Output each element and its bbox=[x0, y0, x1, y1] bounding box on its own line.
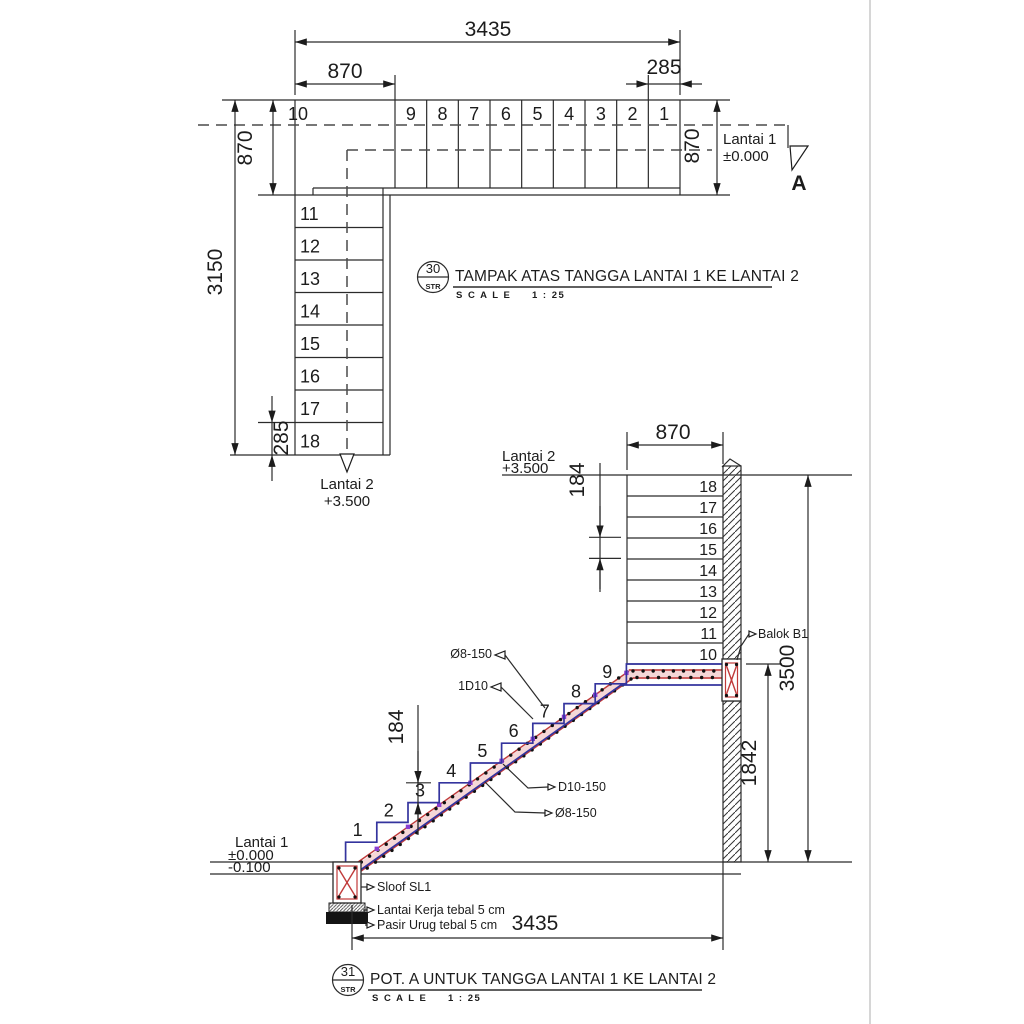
rebar-dot bbox=[668, 676, 671, 679]
step-number: 1 bbox=[353, 820, 363, 840]
plan-level-end-name: Lantai 2 bbox=[320, 476, 373, 493]
step-number: 8 bbox=[571, 682, 581, 702]
step-number: 11 bbox=[700, 626, 717, 643]
rebar-dot bbox=[551, 724, 554, 727]
dim-total-top: 3435 bbox=[465, 18, 512, 41]
rebar-dot bbox=[368, 854, 371, 857]
sand-fill-strip bbox=[326, 912, 368, 924]
rebar-dot bbox=[393, 837, 396, 840]
ann-sloof: Sloof SL1 bbox=[377, 880, 431, 894]
rebar-dot bbox=[385, 843, 388, 846]
rebar-dot bbox=[443, 801, 446, 804]
rebar-dot bbox=[700, 676, 703, 679]
rebar-dot bbox=[692, 669, 695, 672]
tread-number: 11 bbox=[300, 204, 319, 224]
technical-drawing: 109876543211112131415161718 A 3435 870 2… bbox=[0, 0, 1024, 1024]
step-number: 14 bbox=[699, 563, 717, 580]
tread-number: 6 bbox=[501, 104, 511, 124]
step-number: 2 bbox=[384, 800, 394, 820]
section-title: POT. A UNTUK TANGGA LANTAI 1 KE LANTAI 2 bbox=[370, 971, 716, 988]
section-scale-value: 1 : 25 bbox=[448, 993, 481, 1004]
plan-title-block: 30 STR TAMPAK ATAS TANGGA LANTAI 1 KE LA… bbox=[418, 261, 800, 301]
tread-number: 12 bbox=[300, 237, 320, 257]
stirrup-mark bbox=[406, 825, 410, 829]
step-number: 5 bbox=[477, 741, 487, 761]
rebar-dot bbox=[426, 813, 429, 816]
step-number: 12 bbox=[699, 605, 717, 622]
dim-landing: 870 bbox=[655, 421, 690, 444]
section-level-bottom-elev2: -0.100 bbox=[228, 859, 271, 876]
ann-main-bar: D10-150 bbox=[558, 780, 606, 794]
plan-level-start-name: Lantai 1 bbox=[723, 131, 776, 148]
tread-number: 17 bbox=[300, 399, 320, 419]
tread-number: 5 bbox=[532, 104, 542, 124]
rebar-dot bbox=[492, 765, 495, 768]
plan-title: TAMPAK ATAS TANGGA LANTAI 1 KE LANTAI 2 bbox=[455, 268, 799, 285]
rebar-dot bbox=[652, 669, 655, 672]
rebar-dot bbox=[641, 669, 644, 672]
rebar-dot bbox=[476, 777, 479, 780]
rebar-dot bbox=[672, 669, 675, 672]
tread-number: 1 bbox=[659, 104, 669, 124]
rebar-dot bbox=[689, 676, 692, 679]
tread-number: 18 bbox=[300, 432, 320, 452]
walk-arrow-icon bbox=[340, 454, 354, 472]
plan-level-end-elev: +3.500 bbox=[324, 493, 370, 510]
plan-scale-value: 1 : 25 bbox=[532, 290, 565, 301]
step-number: 9 bbox=[602, 662, 612, 682]
drawing-sheet: 109876543211112131415161718 A 3435 870 2… bbox=[0, 0, 1024, 1024]
lean-concrete-strip bbox=[329, 903, 365, 912]
dim-riser-upper: 184 bbox=[566, 462, 589, 497]
rebar-dot bbox=[631, 669, 634, 672]
rebar-dot bbox=[629, 677, 632, 680]
dim-tread-top: 285 bbox=[646, 56, 681, 79]
step-number: 10 bbox=[699, 647, 717, 664]
dim-height-total: 3500 bbox=[776, 645, 799, 692]
section-view: Lantai 2 +3.500 181716151413121110 870 1… bbox=[210, 421, 852, 950]
slab-concrete-fill bbox=[352, 672, 632, 875]
tread-number: 2 bbox=[627, 104, 637, 124]
rebar-dots bbox=[351, 669, 735, 875]
dim-height-landing: 1842 bbox=[738, 740, 761, 787]
plan-level-start-elev: ±0.000 bbox=[723, 148, 769, 165]
section-upper-steps: 181716151413121110 bbox=[627, 479, 723, 664]
section-level-top-elev: +3.500 bbox=[502, 460, 548, 477]
dim-width-right: 870 bbox=[681, 128, 704, 163]
rebar-dot bbox=[646, 676, 649, 679]
dim-run-total: 3435 bbox=[512, 912, 559, 935]
rebar-dot bbox=[451, 795, 454, 798]
ann-extra-bar: 1D10 bbox=[458, 679, 488, 693]
step-number: 16 bbox=[699, 521, 717, 538]
rebar-dot bbox=[517, 748, 520, 751]
tread-number: 8 bbox=[437, 104, 447, 124]
tread-number: 15 bbox=[300, 334, 320, 354]
rebar-dot bbox=[434, 807, 437, 810]
dim-tread-left: 285 bbox=[270, 420, 293, 455]
rebar-dot bbox=[617, 676, 620, 679]
step-number: 17 bbox=[699, 500, 717, 517]
rebar-dot bbox=[712, 669, 715, 672]
dim-width-left: 870 bbox=[234, 130, 257, 165]
plan-callout-number: 30 bbox=[426, 261, 440, 276]
rebar-dot bbox=[711, 676, 714, 679]
section-letter: A bbox=[791, 172, 806, 195]
rebar-dot bbox=[559, 718, 562, 721]
plan-callout-dept: STR bbox=[426, 282, 442, 291]
section-callout-dept: STR bbox=[341, 985, 357, 994]
tread-number: 13 bbox=[300, 269, 320, 289]
rebar-dot bbox=[600, 688, 603, 691]
rebar-dot bbox=[459, 789, 462, 792]
step-number: 3 bbox=[415, 781, 425, 801]
rebar-dot bbox=[567, 712, 570, 715]
ann-sand-fill: Pasir Urug tebal 5 cm bbox=[377, 918, 497, 932]
step-number: 7 bbox=[540, 701, 550, 721]
wall-hatch-upper bbox=[723, 466, 741, 659]
ann-top-bar: Ø8-150 bbox=[450, 647, 492, 661]
tread-number: 9 bbox=[406, 104, 416, 124]
tread-number: 4 bbox=[564, 104, 574, 124]
rebar-dot bbox=[678, 676, 681, 679]
section-callout-number: 31 bbox=[341, 964, 355, 979]
plan-scale-label: S C A L E bbox=[456, 290, 511, 301]
ann-lean-concrete: Lantai Kerja tebal 5 cm bbox=[377, 903, 505, 917]
step-number: 13 bbox=[699, 584, 717, 601]
ann-bottom-bar: Ø8-150 bbox=[555, 806, 597, 820]
section-title-block: 31 STR POT. A UNTUK TANGGA LANTAI 1 KE L… bbox=[333, 964, 717, 1004]
rebar-dot bbox=[484, 771, 487, 774]
tread-number: 7 bbox=[469, 104, 479, 124]
rebar-dot bbox=[662, 669, 665, 672]
tread-number: 3 bbox=[596, 104, 606, 124]
dim-riser-lower: 184 bbox=[385, 709, 408, 744]
rebar-dot bbox=[542, 730, 545, 733]
dim-total-left: 3150 bbox=[204, 249, 227, 296]
plan-tread-lines bbox=[295, 100, 648, 423]
section-flag-icon bbox=[790, 146, 808, 170]
stirrup-mark bbox=[375, 847, 379, 851]
rebar-dot bbox=[401, 831, 404, 834]
rebar-dot bbox=[657, 676, 660, 679]
step-number: 4 bbox=[446, 761, 456, 781]
plan-view: 109876543211112131415161718 A 3435 870 2… bbox=[198, 18, 808, 510]
rebar-dot bbox=[575, 706, 578, 709]
section-scale-label: S C A L E bbox=[372, 993, 427, 1004]
dim-landing-top: 870 bbox=[327, 60, 362, 83]
rebar-dot bbox=[509, 753, 512, 756]
rebar-dot bbox=[635, 676, 638, 679]
step-number: 6 bbox=[509, 721, 519, 741]
tread-number: 16 bbox=[300, 367, 320, 387]
rebar-dot bbox=[682, 669, 685, 672]
ann-beam: Balok B1 bbox=[758, 627, 808, 641]
tread-number: 10 bbox=[288, 104, 308, 124]
step-number: 18 bbox=[699, 479, 717, 496]
tread-number: 14 bbox=[300, 302, 320, 322]
rebar-dot bbox=[702, 669, 705, 672]
step-number: 15 bbox=[699, 542, 717, 559]
